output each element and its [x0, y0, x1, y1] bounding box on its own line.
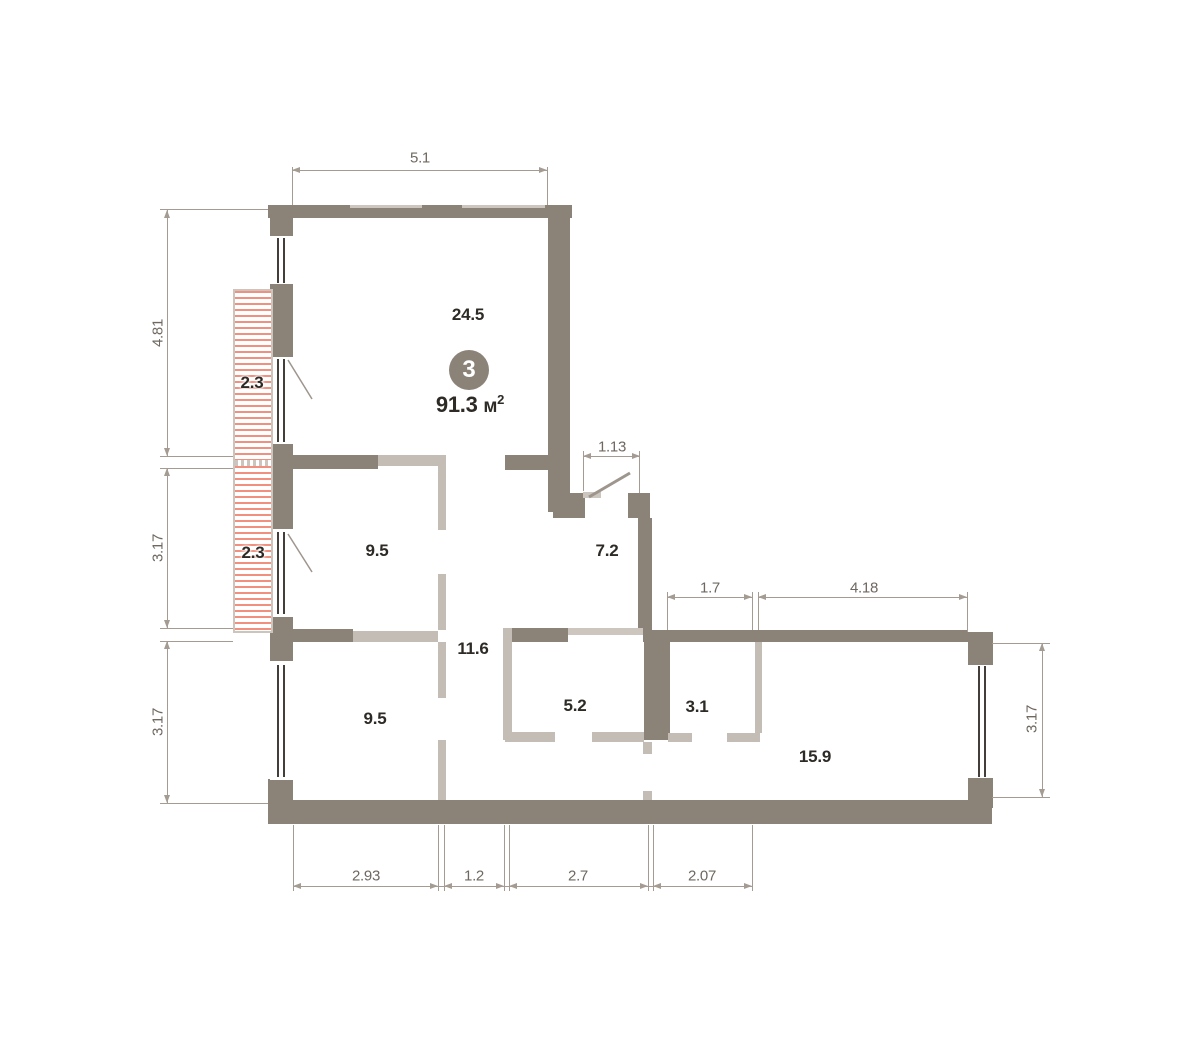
- dim-arrow: [496, 883, 504, 889]
- dim-tick: [160, 209, 268, 210]
- dim-arrow: [758, 594, 766, 600]
- dim-value: 2.7: [568, 868, 588, 885]
- dim-arrow: [583, 453, 591, 459]
- dim-ext: [293, 825, 294, 891]
- dim-ext: [653, 825, 654, 891]
- dim-arrow: [539, 167, 547, 173]
- room-label-balcony-top: 2.3: [240, 373, 263, 393]
- room-label-hallway: 7.2: [595, 541, 618, 561]
- entry-door-leaf: [589, 473, 630, 497]
- dim-ext: [752, 825, 753, 891]
- dim-value: 2.07: [688, 868, 716, 885]
- dim-arrow: [1039, 643, 1045, 651]
- dim-ext: [648, 825, 649, 891]
- dim-arrow: [164, 641, 170, 649]
- dim-value: 5.1: [410, 150, 430, 167]
- dim-line: [167, 210, 168, 456]
- dim-line: [758, 597, 968, 598]
- dim-value: 4.81: [150, 319, 167, 347]
- dim-line: [667, 597, 753, 598]
- dim-tick: [992, 797, 1050, 798]
- dim-arrow: [293, 883, 301, 889]
- dim-arrow: [509, 883, 517, 889]
- dim-value: 2.93: [352, 868, 380, 885]
- dim-arrow: [744, 594, 752, 600]
- room-label-corridor: 11.6: [457, 639, 488, 659]
- room-label-balcony-bottom: 2.3: [241, 543, 264, 563]
- room-label-kitchen-niche: 5.2: [563, 696, 586, 716]
- balcony-door-swing: [288, 534, 312, 572]
- dim-arrow: [430, 883, 438, 889]
- dim-line: [1042, 643, 1043, 797]
- room-label-bathroom: 3.1: [685, 697, 708, 717]
- balcony-door-swing: [288, 360, 312, 399]
- dim-line: [293, 886, 753, 887]
- dim-tick: [160, 468, 233, 469]
- room-label-living: 24.5: [452, 305, 484, 325]
- dim-ext: [547, 167, 548, 205]
- dim-arrow: [164, 448, 170, 456]
- dim-arrow: [744, 883, 752, 889]
- dim-arrow: [292, 167, 300, 173]
- dim-ext: [504, 825, 505, 891]
- total-area-unit: м: [483, 396, 497, 417]
- dim-ext: [509, 825, 510, 891]
- apartment-number-badge: 3: [449, 350, 489, 390]
- dim-arrow: [632, 453, 640, 459]
- dim-arrow: [164, 795, 170, 803]
- floor-plan: 3 91.3 м2 24.5 9.5 7.2 11.6 9.5 5.2 3.1 …: [0, 0, 1200, 1046]
- dim-arrow: [444, 883, 452, 889]
- dim-arrow: [959, 594, 967, 600]
- apartment-number: 3: [462, 356, 475, 384]
- room-label-bedroom-middle: 9.5: [365, 541, 388, 561]
- door-swings-overlay: [0, 0, 1200, 1046]
- dim-ext: [444, 825, 445, 891]
- dim-arrow: [653, 883, 661, 889]
- dim-line: [292, 170, 548, 171]
- dim-tick: [160, 803, 268, 804]
- dim-line: [167, 641, 168, 803]
- dim-value: 1.2: [464, 868, 484, 885]
- total-area-label: 91.3 м2: [436, 392, 504, 418]
- dim-tick: [160, 628, 233, 629]
- room-label-kitchen-living: 15.9: [799, 747, 831, 767]
- dim-value: 1.7: [700, 580, 720, 597]
- dim-arrow: [667, 594, 675, 600]
- dim-ext: [752, 592, 753, 630]
- dim-value: 4.18: [850, 580, 878, 597]
- dim-arrow: [164, 468, 170, 476]
- dim-value: 1.13: [598, 439, 626, 456]
- dim-arrow: [164, 210, 170, 218]
- dim-arrow: [164, 620, 170, 628]
- dim-ext: [438, 825, 439, 891]
- dim-tick: [160, 456, 233, 457]
- dim-value: 3.17: [1024, 705, 1041, 733]
- dim-arrow: [1039, 789, 1045, 797]
- dim-arrow: [640, 883, 648, 889]
- dim-tick: [160, 641, 233, 642]
- total-area-value: 91.3: [436, 392, 478, 417]
- dim-value: 3.17: [150, 534, 167, 562]
- dim-ext: [967, 592, 968, 632]
- total-area-sup: 2: [497, 392, 504, 407]
- dim-value: 3.17: [150, 708, 167, 736]
- dim-line: [167, 468, 168, 628]
- room-label-bedroom-bottom: 9.5: [363, 709, 386, 729]
